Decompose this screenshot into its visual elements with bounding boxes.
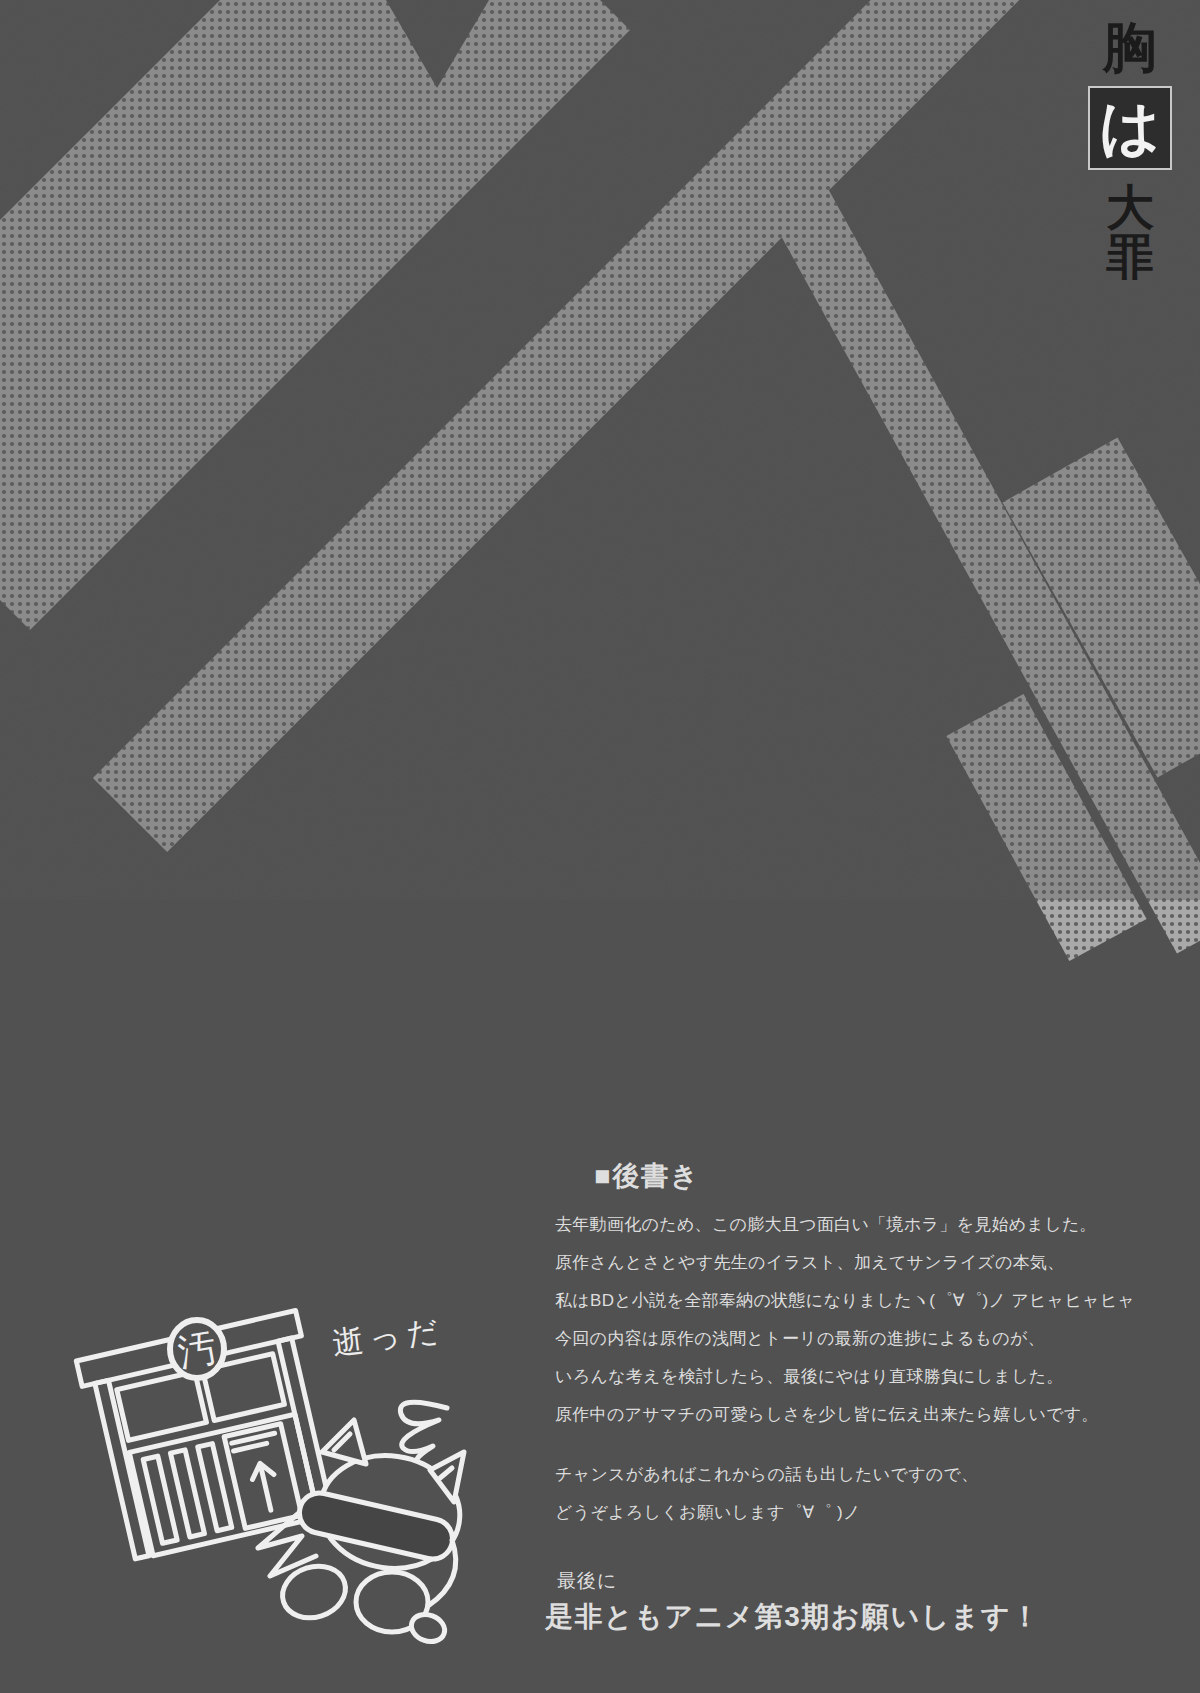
afterword-line: 去年動画化のため、この膨大且つ面白い「境ホラ」を見始めました。	[555, 1206, 1135, 1244]
afterword-line: いろんな考えを検討したら、最後にやはり直球勝負にしました。	[555, 1358, 1099, 1396]
scan-grain-overlay	[0, 0, 1200, 900]
afterword-line: 私はBDと小説を全部奉納の状態になりましたヽ(゜∀゜)ノ アヒャヒャヒャ	[555, 1282, 1135, 1320]
closing-lead-in: 最後に	[557, 1568, 617, 1594]
vertical-title: 胸 は 大 罪	[1080, 20, 1180, 282]
afterword-line: 原作中のアサマチの可愛らしさを少し皆に伝え出来たら嬉しいです。	[555, 1396, 1099, 1434]
title-taizai: 大 罪	[1106, 184, 1154, 282]
afterword-paragraph-1: 去年動画化のため、この膨大且つ面白い「境ホラ」を見始めました。 原作さんとさとや…	[555, 1206, 1135, 1320]
title-boxed-ha: は	[1099, 98, 1160, 158]
title-kanji-dai: 大	[1106, 184, 1154, 233]
background-art: 汚	[0, 0, 1200, 1693]
afterword-line: どうぞよろしくお願いします゜∀゜ )ノ	[555, 1494, 979, 1532]
doujinshi-afterword-page: 汚 胸 は	[0, 0, 1200, 1693]
afterword-paragraph-3: チャンスがあればこれからの話も出したいですので、 どうぞよろしくお願いします゜∀…	[555, 1456, 979, 1532]
closing-request: 是非ともアニメ第3期お願いします！	[545, 1598, 1041, 1636]
title-kanji-zai: 罪	[1106, 233, 1154, 282]
title-kanji-mune: 胸	[1103, 20, 1157, 74]
afterword-paragraph-2: 今回の内容は原作の浅間とトーリの最新の進捗によるものが、 いろんな考えを検討した…	[555, 1320, 1099, 1434]
afterword-line: 原作さんとさとやす先生のイラスト、加えてサンライズの本気、	[555, 1244, 1135, 1282]
title-ha-box: は	[1088, 86, 1172, 170]
crest-kanji: 汚	[175, 1326, 220, 1374]
crest-circle: 汚	[170, 1320, 224, 1378]
afterword-line: チャンスがあればこれからの話も出したいですので、	[555, 1456, 979, 1494]
afterword-heading: ■後書き	[594, 1158, 700, 1194]
afterword-line: 今回の内容は原作の浅間とトーリの最新の進捗によるものが、	[555, 1320, 1099, 1358]
